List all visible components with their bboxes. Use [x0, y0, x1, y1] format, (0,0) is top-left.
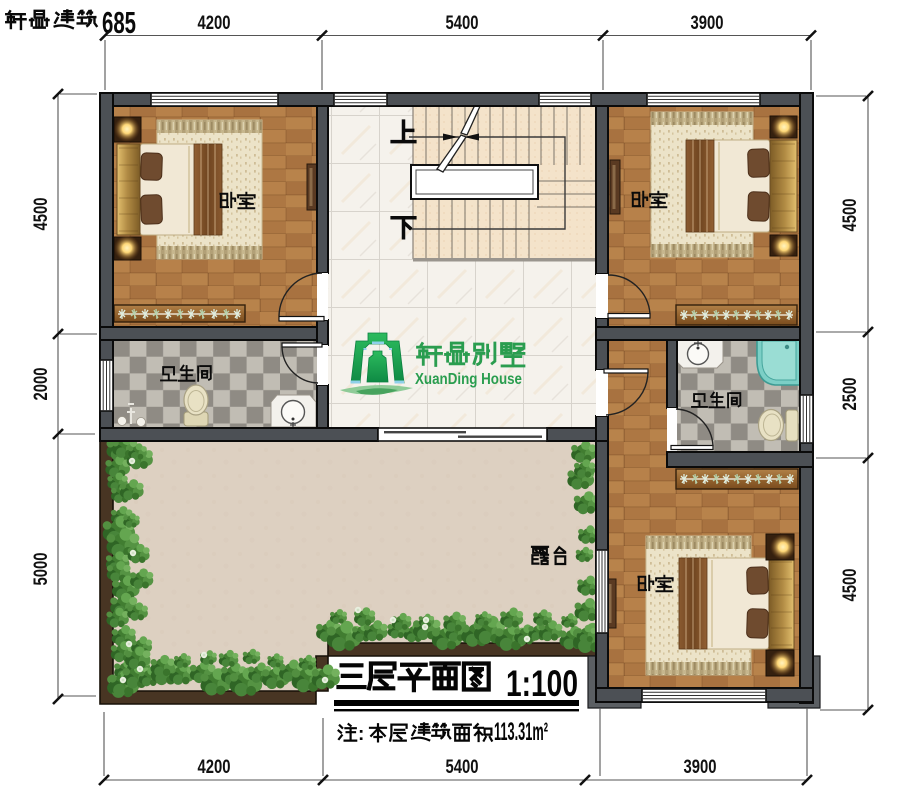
svg-text:2500: 2500: [840, 378, 861, 411]
svg-text::: :: [358, 724, 364, 745]
svg-text:113.31m²: 113.31m²: [494, 718, 548, 746]
svg-text:1:100: 1:100: [506, 663, 578, 704]
svg-text:3900: 3900: [691, 13, 724, 34]
svg-text:2000: 2000: [31, 368, 52, 401]
svg-text:4500: 4500: [840, 199, 861, 232]
svg-text:4500: 4500: [840, 569, 861, 602]
svg-text:XuanDing House: XuanDing House: [415, 371, 522, 388]
svg-text:4200: 4200: [198, 13, 231, 34]
svg-text:5400: 5400: [446, 13, 479, 34]
svg-text:4500: 4500: [31, 198, 52, 231]
svg-text:4200: 4200: [198, 757, 231, 778]
svg-text:5000: 5000: [31, 553, 52, 586]
svg-text:3900: 3900: [684, 757, 717, 778]
svg-text:5400: 5400: [446, 757, 479, 778]
